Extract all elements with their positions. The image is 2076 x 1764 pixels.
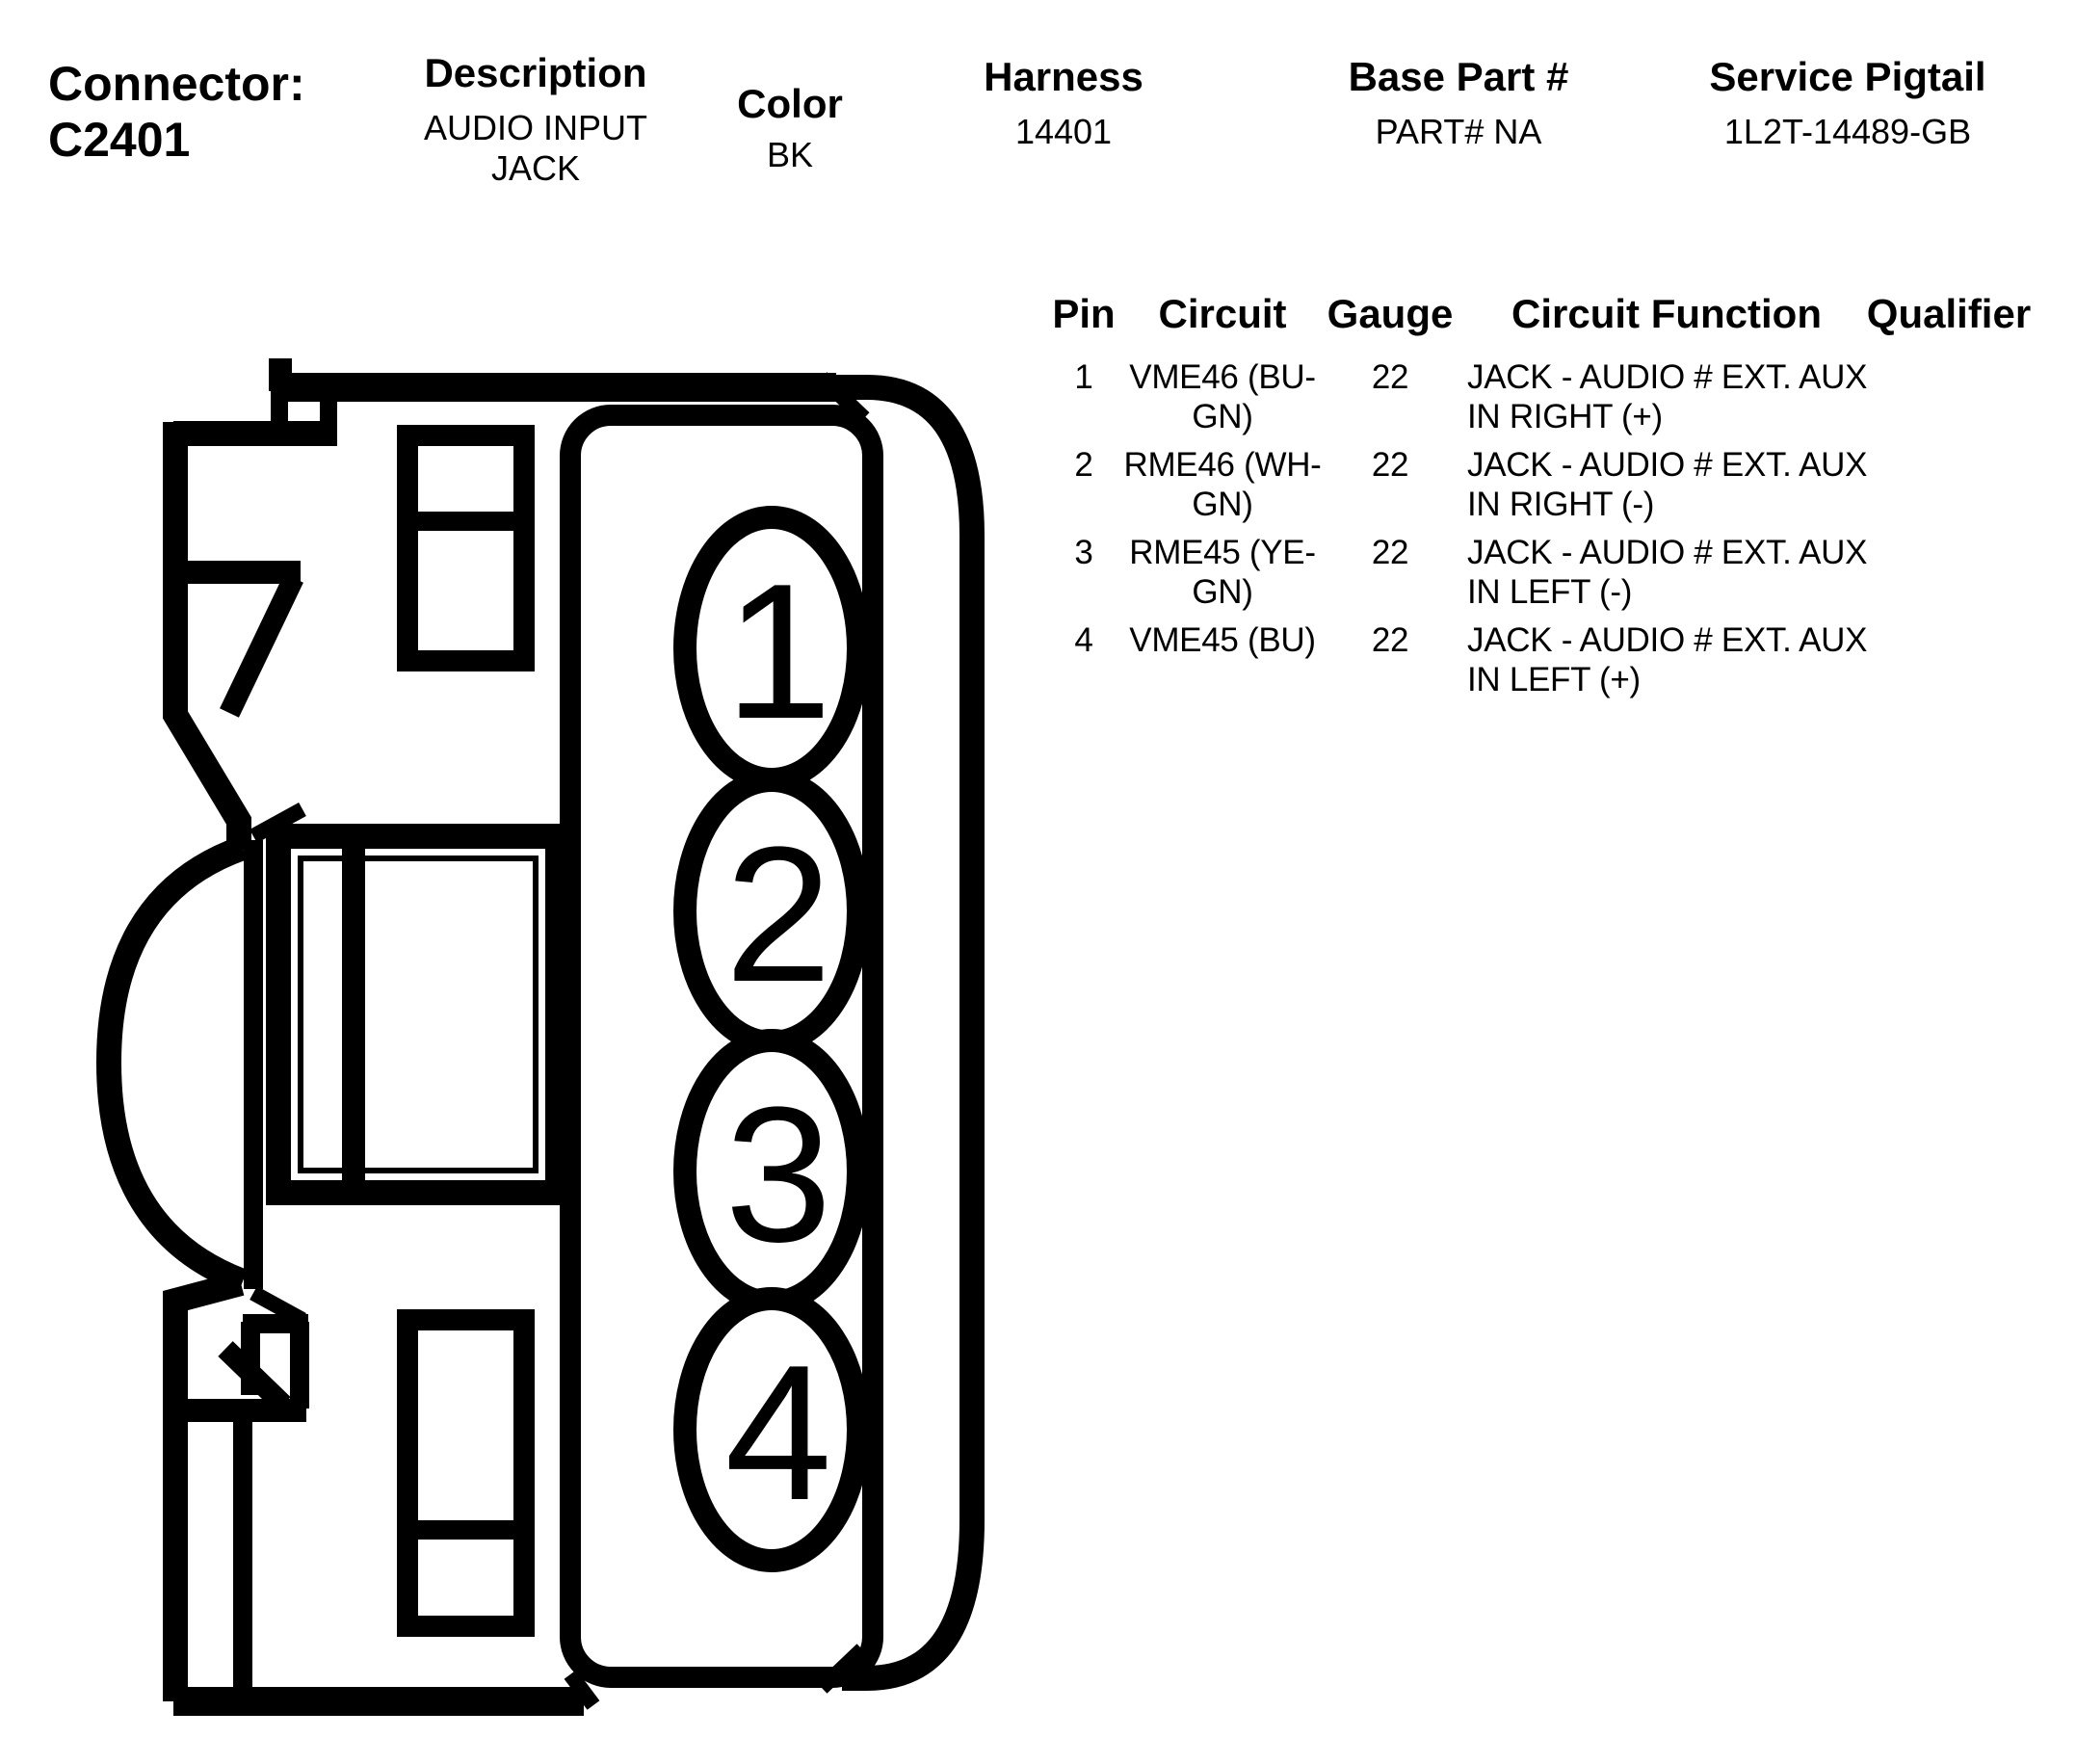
left-bulge [109, 848, 243, 1281]
left-wall-upper [175, 422, 239, 850]
connector-drawing: 1 2 3 4 [0, 0, 2076, 1764]
pin-2-number: 2 [724, 807, 831, 1022]
central-cavity [278, 836, 558, 1193]
pin-4-number: 4 [724, 1326, 831, 1540]
pin-3-number: 3 [724, 1067, 831, 1282]
upper-latch-diagonal [229, 578, 294, 713]
pin-1-number: 1 [724, 544, 831, 759]
upper-window [407, 435, 524, 661]
connector-pinout-page: { "header": { "connector_label": "Connec… [0, 0, 2076, 1764]
lower-window [407, 1320, 524, 1626]
top-edge-tab [269, 358, 292, 391]
